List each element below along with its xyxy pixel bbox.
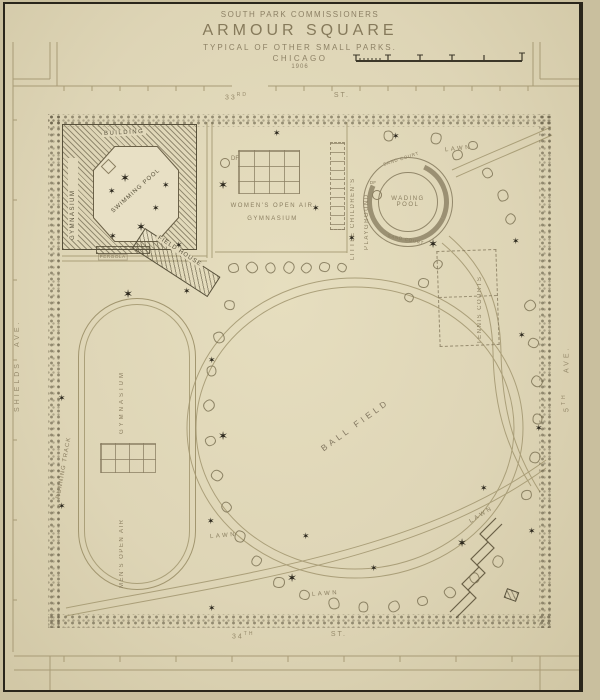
womens-gym-label-line2: GYMNASIUM	[225, 216, 320, 222]
lamp-star-icon: ✶	[480, 485, 488, 494]
pergola-structure	[96, 246, 150, 254]
drinking-fountain-icon	[220, 158, 230, 168]
city-label: CHICAGO	[0, 54, 600, 63]
pergola-label: PERGOLA	[98, 254, 127, 260]
drinking-fountain-icon	[372, 190, 382, 200]
lamp-star-icon: ✶	[162, 182, 170, 191]
lamp-star-icon: ✶	[302, 533, 310, 542]
lamp-star-icon: ✶	[58, 395, 66, 404]
lamp-star-icon: ✶	[535, 425, 543, 434]
womens-gym-apparatus	[238, 150, 300, 194]
shrub-border-right	[539, 114, 552, 628]
lamp-star-icon: ✶	[120, 172, 130, 184]
wading-pool-label-line2: POOL	[397, 202, 420, 208]
lamp-star-icon: ✶	[183, 288, 191, 297]
track-gymnasium-label: GYMNASIUM	[119, 358, 125, 434]
lamp-star-icon: ✶	[208, 605, 216, 614]
drinking-fountain-label: DF	[370, 181, 376, 186]
lamp-star-icon: ✶	[123, 288, 133, 300]
lamp-star-icon: ✶	[208, 357, 216, 366]
lamp-star-icon: ✶	[370, 565, 378, 574]
lamp-star-icon: ✶	[108, 188, 116, 197]
plan-subtitle: TYPICAL OF OTHER SMALL PARKS.	[0, 43, 600, 52]
shrub-border-left	[48, 114, 61, 628]
street-label-shields-ave: SHIELDSAVE.	[14, 262, 21, 412]
mens-gym-apparatus	[100, 443, 156, 473]
scanned-page: { "plan": { "commission": "SOUTH PARK CO…	[0, 0, 600, 700]
lamp-star-icon: ✶	[273, 130, 281, 139]
tree-icon	[228, 263, 239, 273]
tennis-courts-label: TENNIS COURTS	[477, 258, 483, 344]
lamp-star-icon: ✶	[287, 572, 297, 584]
lamp-star-icon: ✶	[518, 332, 526, 341]
street-label-34th: 34TH ST.	[232, 631, 347, 640]
drinking-fountain-label: DF	[231, 156, 239, 162]
lamp-star-icon: ✶	[218, 430, 228, 442]
gymnasium-building-label: GYMNASIUM	[68, 158, 78, 240]
playground-apparatus	[330, 142, 345, 230]
tennis-courts	[436, 249, 499, 347]
lamp-star-icon: ✶	[512, 238, 520, 247]
street-number: 34TH	[232, 631, 254, 640]
lamp-star-icon: ✶	[58, 503, 66, 512]
street-label-33rd: 33RD ST.	[225, 92, 350, 101]
lamp-star-icon: ✶	[175, 242, 183, 251]
lamp-star-icon: ✶	[528, 528, 536, 537]
plan-title: ARMOUR SQUARE	[0, 22, 600, 40]
wading-pool: WADING POOL	[378, 172, 438, 232]
lamp-star-icon: ✶	[109, 233, 117, 242]
street-number: 5TH	[563, 392, 570, 412]
commission-name: SOUTH PARK COMMISSIONERS	[0, 10, 600, 19]
lamp-star-icon: ✶	[136, 221, 146, 233]
lamp-star-icon: ✶	[392, 133, 400, 142]
tree-icon	[417, 596, 428, 606]
lamp-star-icon: ✶	[457, 537, 467, 549]
lamp-star-icon: ✶	[312, 205, 320, 214]
shrub-border-bottom	[48, 614, 552, 628]
lamp-star-icon: ✶	[348, 235, 356, 244]
lamp-star-icon: ✶	[428, 238, 438, 250]
lamp-star-icon: ✶	[152, 205, 160, 214]
street-type: ST.	[331, 631, 347, 640]
street-label-5th-ave: 5TH AVE.	[561, 262, 570, 412]
tree-icon	[532, 413, 542, 424]
lamp-star-icon: ✶	[218, 179, 228, 191]
street-type: ST.	[334, 92, 350, 101]
street-number: 33RD	[225, 92, 248, 101]
lamp-star-icon: ✶	[207, 518, 215, 527]
year-label: 1906	[0, 64, 600, 70]
playground-label-line2: PLAYGROUND	[364, 150, 370, 250]
mens-open-air-label: MEN'S OPEN AIR	[119, 498, 125, 588]
